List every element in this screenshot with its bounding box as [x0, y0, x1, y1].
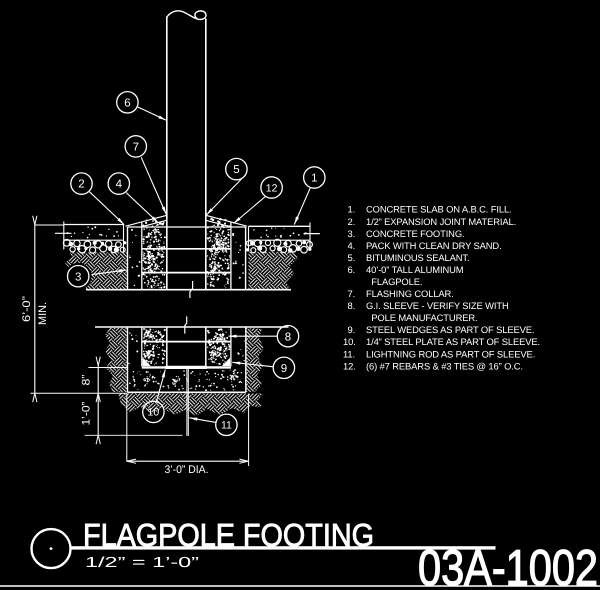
svg-text:CONCRETE FOOTING.: CONCRETE FOOTING. [366, 228, 464, 239]
svg-text:(6) #7 REBARS & #3 TIES @ 16”: (6) #7 REBARS & #3 TIES @ 16” O.C. [366, 360, 523, 371]
svg-text:FLASHING COLLAR.: FLASHING COLLAR. [366, 288, 454, 299]
svg-text:9.: 9. [348, 324, 356, 335]
svg-text:POLE MANUFACTURER.: POLE MANUFACTURER. [371, 312, 477, 323]
svg-text:1.: 1. [348, 204, 356, 215]
svg-text:6’-0”: 6’-0” [21, 296, 33, 322]
svg-text:3.: 3. [348, 228, 356, 239]
svg-text:STEEL WEDGES AS PART OF SLEEVE: STEEL WEDGES AS PART OF SLEEVE. [366, 324, 534, 335]
svg-text:10.: 10. [343, 336, 356, 347]
svg-text:PACK WITH CLEAN DRY SAND.: PACK WITH CLEAN DRY SAND. [366, 240, 502, 251]
svg-text:3’-0” DIA.: 3’-0” DIA. [165, 464, 209, 476]
svg-text:5.: 5. [348, 252, 356, 263]
svg-text:4: 4 [116, 179, 123, 191]
svg-text:12: 12 [266, 182, 278, 194]
svg-text:G.I. SLEEVE - VERIFY SIZE WITH: G.I. SLEEVE - VERIFY SIZE WITH [366, 300, 509, 311]
svg-text:10: 10 [148, 407, 160, 419]
svg-text:1/2” EXPANSION JOINT MATERIAL.: 1/2” EXPANSION JOINT MATERIAL. [366, 216, 516, 227]
svg-text:7.: 7. [348, 288, 356, 299]
svg-text:4.: 4. [348, 240, 356, 251]
svg-text:1/2” = 1’-0”: 1/2” = 1’-0” [85, 555, 199, 571]
svg-text:FLAGPOLE FOOTING: FLAGPOLE FOOTING [83, 517, 374, 553]
svg-text:FLAGPOLE.: FLAGPOLE. [371, 276, 422, 287]
svg-text:3: 3 [75, 271, 81, 283]
svg-text:11.: 11. [343, 348, 355, 359]
svg-text:1/4” STEEL PLATE AS PART OF SL: 1/4” STEEL PLATE AS PART OF SLEEVE. [366, 336, 540, 347]
svg-text:9: 9 [281, 363, 287, 375]
svg-text:5: 5 [233, 164, 239, 176]
svg-text:11: 11 [221, 420, 232, 432]
svg-text:BITUMINOUS SEALANT.: BITUMINOUS SEALANT. [366, 252, 469, 263]
svg-text:7: 7 [133, 142, 139, 154]
svg-text:12.: 12. [343, 360, 356, 371]
svg-text:1: 1 [311, 173, 317, 185]
svg-text:2: 2 [78, 179, 84, 191]
svg-text:MIN.: MIN. [37, 302, 49, 325]
svg-text:1’-0”: 1’-0” [81, 401, 93, 425]
svg-text:2.: 2. [348, 216, 356, 227]
svg-text:8.: 8. [348, 300, 356, 311]
svg-text:LIGHTNING ROD AS PART OF SLEEV: LIGHTNING ROD AS PART OF SLEEVE. [366, 348, 535, 359]
svg-text:03A-1002: 03A-1002 [418, 539, 598, 590]
svg-text:8”: 8” [80, 374, 92, 385]
svg-text:CONCRETE SLAB ON A.B.C. FILL.: CONCRETE SLAB ON A.B.C. FILL. [366, 204, 512, 215]
svg-text:40’-0” TALL ALUMINUM: 40’-0” TALL ALUMINUM [366, 264, 464, 275]
svg-text:8: 8 [285, 331, 291, 343]
svg-text:6: 6 [124, 97, 130, 109]
svg-text:6.: 6. [348, 264, 356, 275]
